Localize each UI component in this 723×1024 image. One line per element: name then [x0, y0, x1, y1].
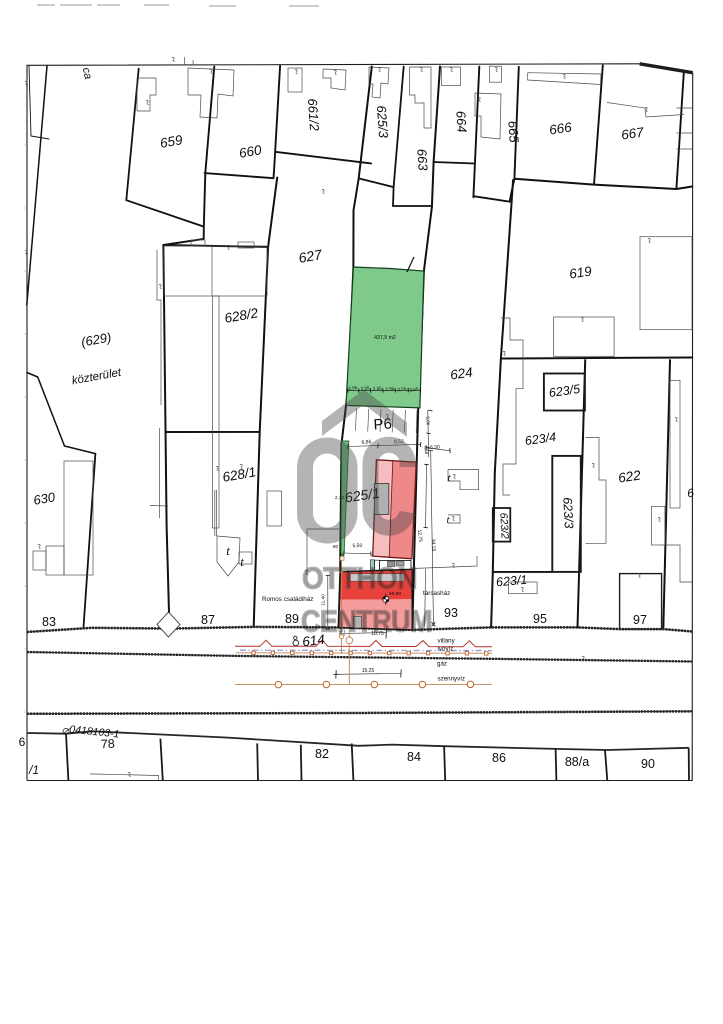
svg-text:625/3: 625/3 — [374, 105, 391, 139]
svg-text:6: 6 — [19, 735, 26, 749]
svg-text:661/2: 661/2 — [305, 98, 322, 132]
svg-text:623/2: 623/2 — [497, 512, 510, 539]
svg-text:ivóvíz: ivóvíz — [438, 645, 454, 652]
svg-text:623/1: 623/1 — [495, 573, 527, 590]
svg-text:89: 89 — [285, 612, 299, 626]
svg-text:78: 78 — [100, 737, 115, 752]
svg-text:664: 664 — [453, 110, 469, 133]
svg-text:OTTHON: OTTHON — [302, 561, 417, 596]
svg-text:437,9 m2: 437,9 m2 — [374, 335, 396, 341]
svg-text:Romos családiház: Romos családiház — [262, 596, 313, 603]
svg-text:t: t — [226, 543, 230, 558]
svg-text:t: t — [240, 554, 244, 569]
svg-text:93: 93 — [444, 606, 458, 620]
svg-text:5,50: 5,50 — [352, 543, 362, 550]
svg-text:ca: ca — [80, 66, 94, 80]
svg-text:667: 667 — [620, 124, 645, 142]
svg-text:84: 84 — [407, 750, 421, 764]
svg-text:624: 624 — [449, 365, 473, 383]
svg-text:83: 83 — [42, 615, 56, 629]
svg-text:társasház: társasház — [423, 590, 450, 597]
svg-text:/1: /1 — [28, 763, 39, 777]
svg-text:villany: villany — [438, 637, 456, 644]
svg-text:87: 87 — [201, 613, 215, 627]
svg-text:5,06: 5,06 — [425, 416, 431, 426]
svg-text:15,25: 15,25 — [362, 668, 375, 674]
svg-text:szennyvíz: szennyvíz — [438, 676, 466, 683]
svg-text:663: 663 — [414, 148, 431, 171]
svg-text:622: 622 — [617, 467, 642, 485]
svg-text:80: 80 — [333, 544, 339, 550]
svg-text:6,50: 6,50 — [423, 445, 429, 455]
svg-text:CENTRUM: CENTRUM — [301, 604, 432, 639]
svg-text:665: 665 — [505, 120, 522, 143]
svg-text:97: 97 — [633, 613, 647, 627]
svg-text:6,30: 6,30 — [430, 444, 440, 451]
svg-text:88/a: 88/a — [565, 755, 589, 769]
svg-text:619: 619 — [568, 263, 593, 281]
svg-text:623/3: 623/3 — [560, 497, 576, 529]
svg-text:90: 90 — [641, 757, 655, 771]
svg-text:34,15: 34,15 — [430, 539, 437, 552]
svg-text:666: 666 — [548, 119, 573, 137]
svg-text:gáz: gáz — [437, 661, 447, 668]
svg-text:82: 82 — [315, 747, 329, 761]
svg-text:95: 95 — [533, 612, 547, 626]
svg-text:86: 86 — [492, 751, 506, 765]
